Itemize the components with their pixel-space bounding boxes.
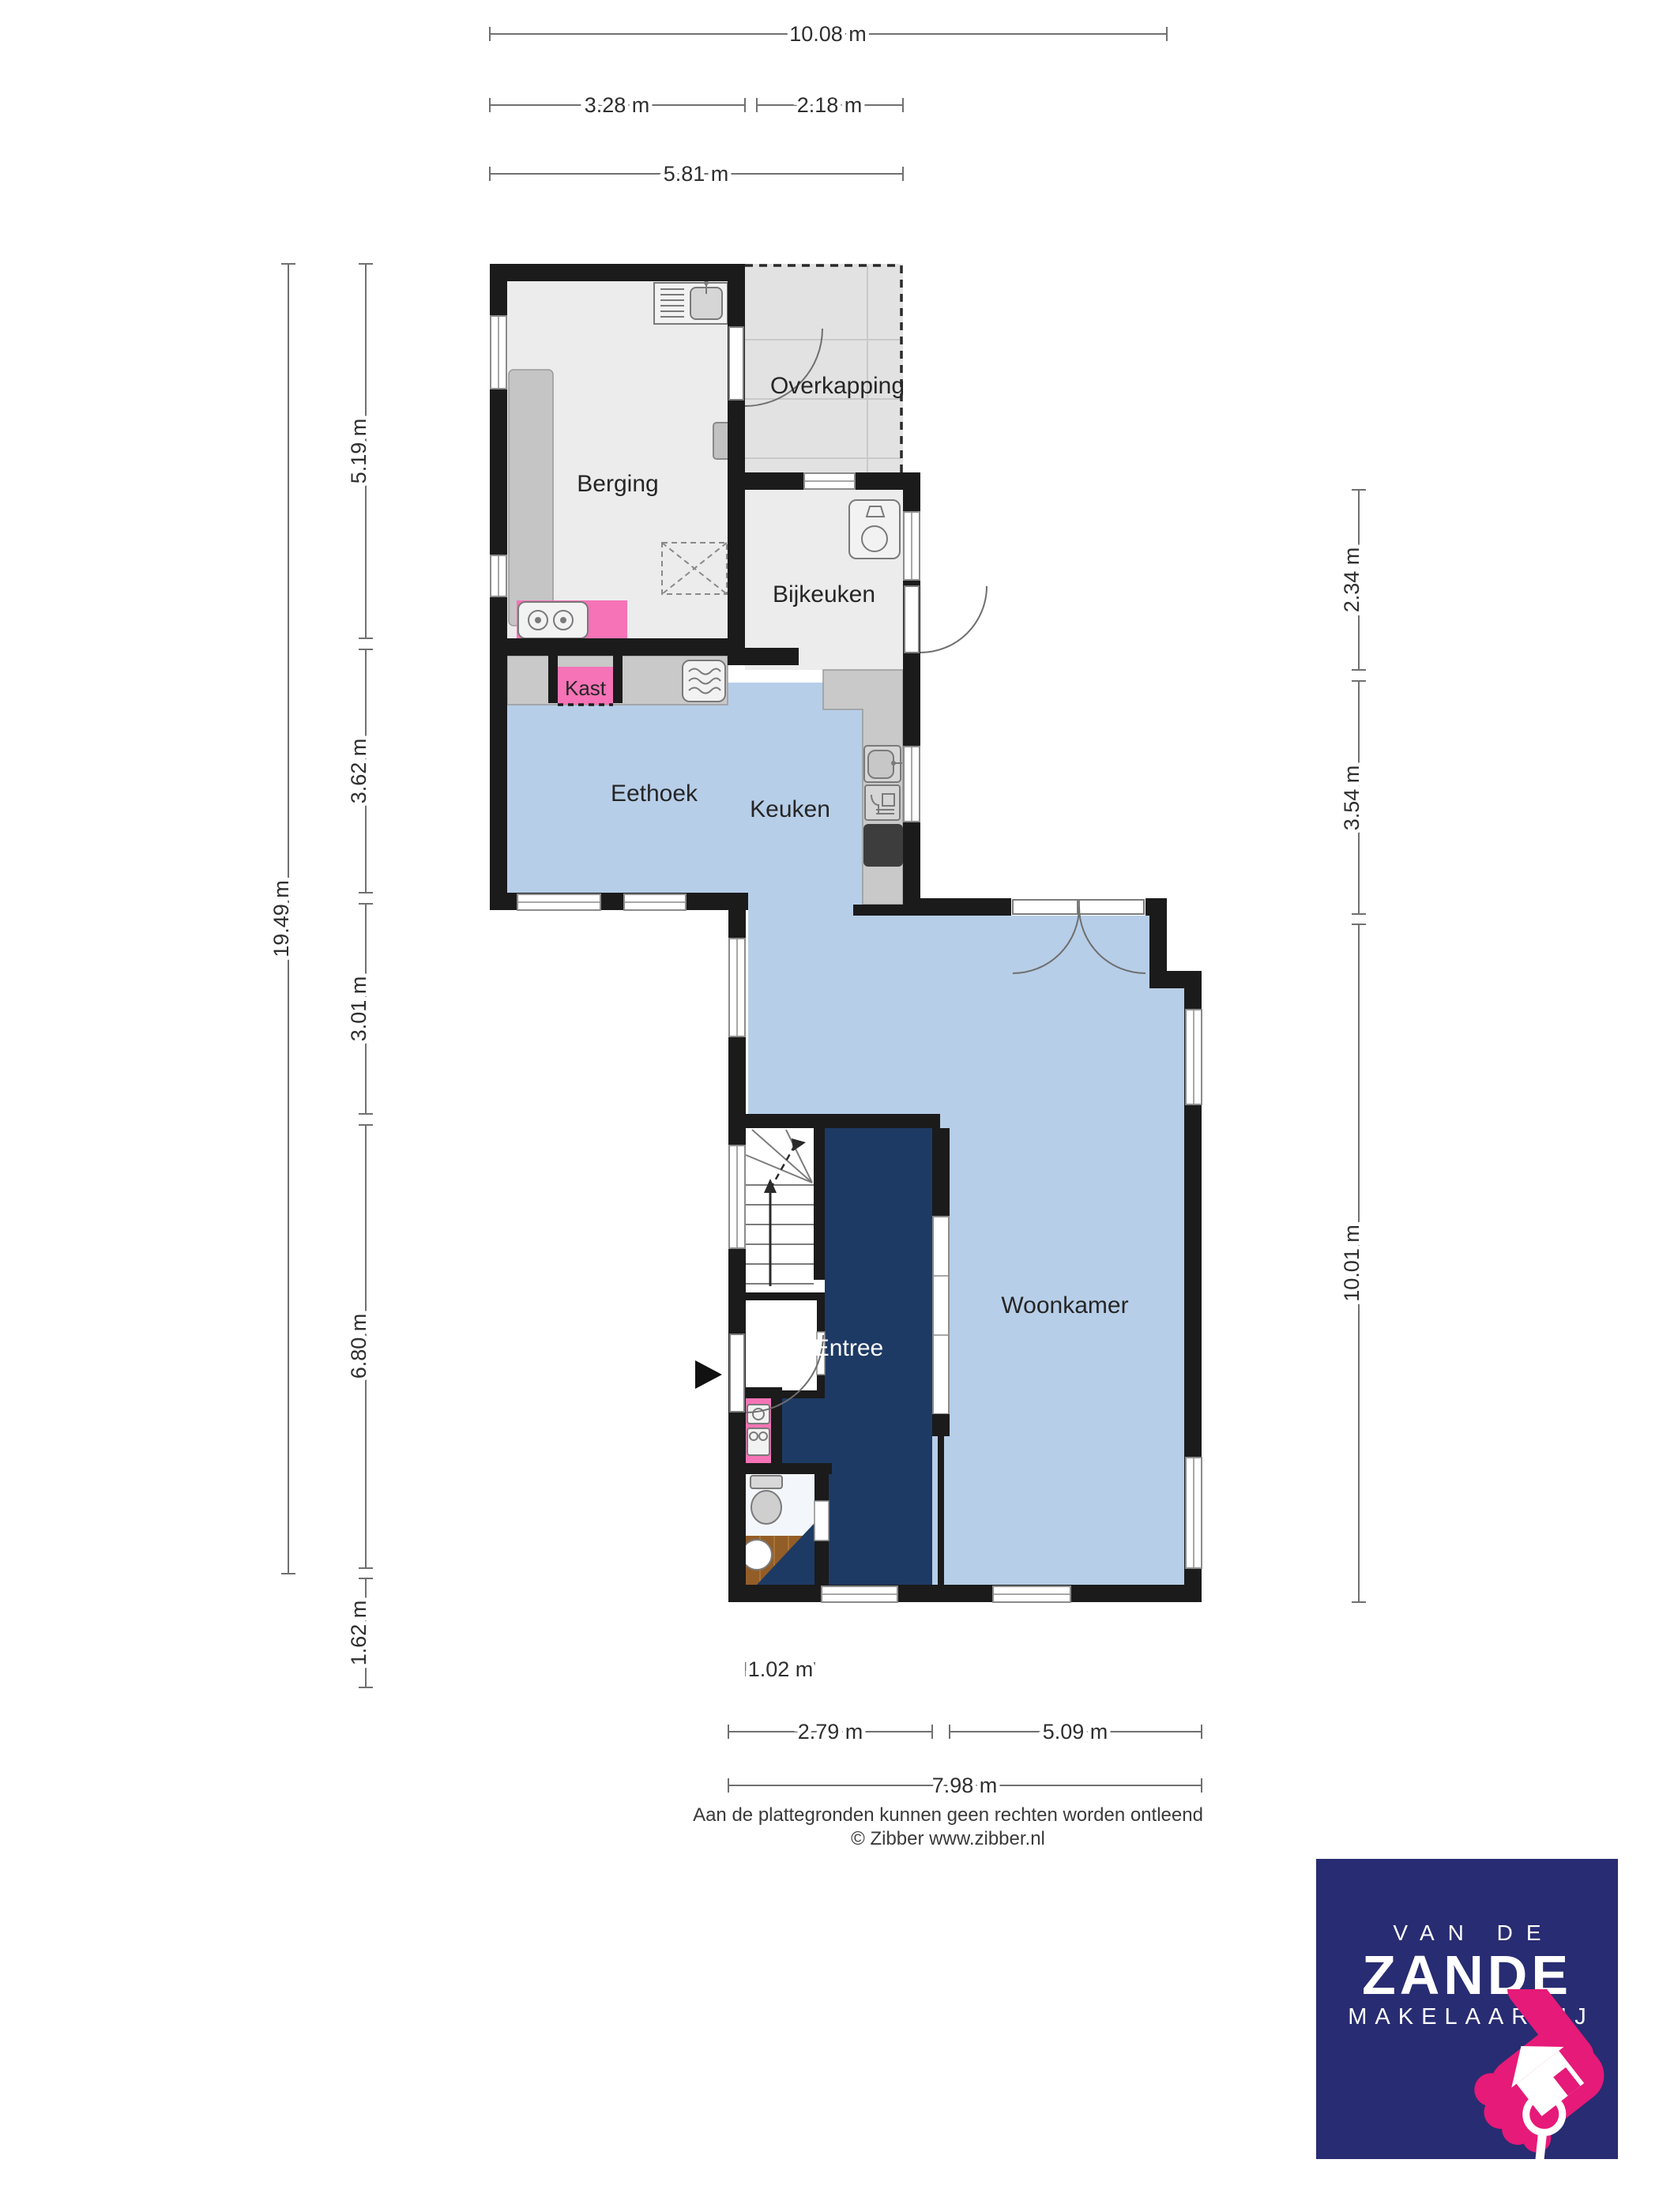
window xyxy=(1186,1458,1202,1568)
boiler-icon xyxy=(517,600,627,640)
window xyxy=(822,1586,897,1602)
svg-text:3.54 m: 3.54 m xyxy=(1340,766,1364,831)
staircase xyxy=(746,1128,814,1292)
logo-house-magnifier-icon xyxy=(1452,1989,1618,2159)
oven-icon xyxy=(683,660,725,702)
window xyxy=(729,939,745,1036)
svg-text:3.01 m: 3.01 m xyxy=(347,976,371,1042)
svg-text:7.98 m: 7.98 m xyxy=(932,1774,998,1797)
window xyxy=(904,512,920,580)
dim-top-berging: 3.28 m xyxy=(490,93,745,117)
dim-right-middle: 3.54 m xyxy=(1340,681,1366,914)
svg-text:1.02 m: 1.02 m xyxy=(748,1657,814,1681)
dim-left-total: 19.49 m xyxy=(269,264,295,1574)
dim-bottom-toilet: 1.02 m xyxy=(746,1657,814,1681)
room-label-kast: Kast xyxy=(565,676,607,700)
room-label-berging: Berging xyxy=(577,471,658,497)
room-label-bijkeuken: Bijkeuken xyxy=(773,581,875,608)
window xyxy=(517,894,600,910)
window xyxy=(904,747,920,822)
toilet-door xyxy=(814,1501,829,1540)
stove-icon xyxy=(863,824,903,867)
window xyxy=(491,555,506,596)
disclaimer-text: Aan de plattegronden kunnen geen rechten… xyxy=(671,1804,1224,1827)
dim-left-eethoek: 3.62 m xyxy=(347,649,373,893)
window xyxy=(624,894,686,910)
kitchen-sink-icon xyxy=(864,746,902,782)
toilet-room xyxy=(742,1463,832,1585)
svg-text:1.62 m: 1.62 m xyxy=(347,1601,371,1666)
floorplan-page: Overkapping Berging Bijkeuken Eethoek Ke… xyxy=(0,0,1659,2212)
svg-text:6.80 m: 6.80 m xyxy=(347,1314,371,1379)
room-label-overkapping: Overkapping xyxy=(770,373,905,399)
room-label-keuken: Keuken xyxy=(750,796,830,822)
dim-top-overkapping: 2.18 m xyxy=(757,93,903,117)
window xyxy=(1186,1010,1202,1104)
svg-text:5.81 m: 5.81 m xyxy=(664,162,729,186)
svg-text:3.28 m: 3.28 m xyxy=(585,93,650,117)
entrance-arrow-icon xyxy=(695,1360,722,1389)
door-bijkeuken-outside xyxy=(905,586,987,653)
svg-text:3.62 m: 3.62 m xyxy=(347,739,371,804)
svg-text:5.09 m: 5.09 m xyxy=(1043,1720,1108,1744)
glass-partition xyxy=(933,1217,949,1414)
svg-text:10.01 m: 10.01 m xyxy=(1340,1224,1364,1302)
svg-text:19.49 m: 19.49 m xyxy=(269,880,293,957)
brand-logo: VAN DE ZANDE MAKELAARDIJ xyxy=(1316,1859,1618,2159)
dim-right-woonkamer: 10.01 m xyxy=(1340,924,1366,1602)
workbench xyxy=(509,370,553,626)
dim-right-bijkeuken: 2.34 m xyxy=(1340,490,1366,670)
dim-bottom-total: 7.98 m xyxy=(728,1774,1202,1797)
hand-sink-icon xyxy=(742,1540,772,1570)
window xyxy=(993,1586,1070,1602)
window xyxy=(804,473,855,489)
dim-bottom-entree: 2.79 m xyxy=(728,1720,932,1744)
overkapping-floor xyxy=(745,264,903,472)
dim-bottom-woonkamer: 5.09 m xyxy=(950,1720,1202,1744)
floors xyxy=(507,264,1184,1585)
room-label-woonkamer: Woonkamer xyxy=(1001,1292,1128,1319)
svg-text:2.18 m: 2.18 m xyxy=(797,93,863,117)
svg-text:10.08 m: 10.08 m xyxy=(789,22,867,46)
toilet-icon xyxy=(750,1476,782,1524)
copyright-text: © Zibber www.zibber.nl xyxy=(671,1827,1224,1851)
dim-top-combined: 5.81 m xyxy=(490,162,903,186)
dim-top-total: 10.08 m xyxy=(490,22,1167,46)
meter-icon xyxy=(747,1428,769,1455)
room-label-entree: Entree xyxy=(814,1335,883,1361)
room-label-eethoek: Eethoek xyxy=(611,781,698,807)
dim-left-entree: 6.80 m xyxy=(347,1125,373,1568)
washing-machine-icon xyxy=(849,500,900,559)
dim-left-berging: 5.19 m xyxy=(347,264,373,638)
utility-sink-icon xyxy=(654,280,728,324)
window xyxy=(729,1145,745,1248)
window xyxy=(491,316,506,389)
meter-closet xyxy=(746,1387,782,1474)
dim-left-toilet: 1.62 m xyxy=(347,1578,373,1687)
svg-text:2.34 m: 2.34 m xyxy=(1340,547,1364,613)
dishwasher-icon xyxy=(865,785,900,820)
dim-left-middle: 3.01 m xyxy=(347,904,373,1114)
svg-text:5.19 m: 5.19 m xyxy=(347,419,371,484)
meter-icon xyxy=(747,1405,769,1424)
logo-line1: VAN DE xyxy=(1316,1920,1618,1946)
footer-disclaimer: Aan de plattegronden kunnen geen rechten… xyxy=(671,1804,1224,1851)
svg-text:2.79 m: 2.79 m xyxy=(798,1720,863,1744)
